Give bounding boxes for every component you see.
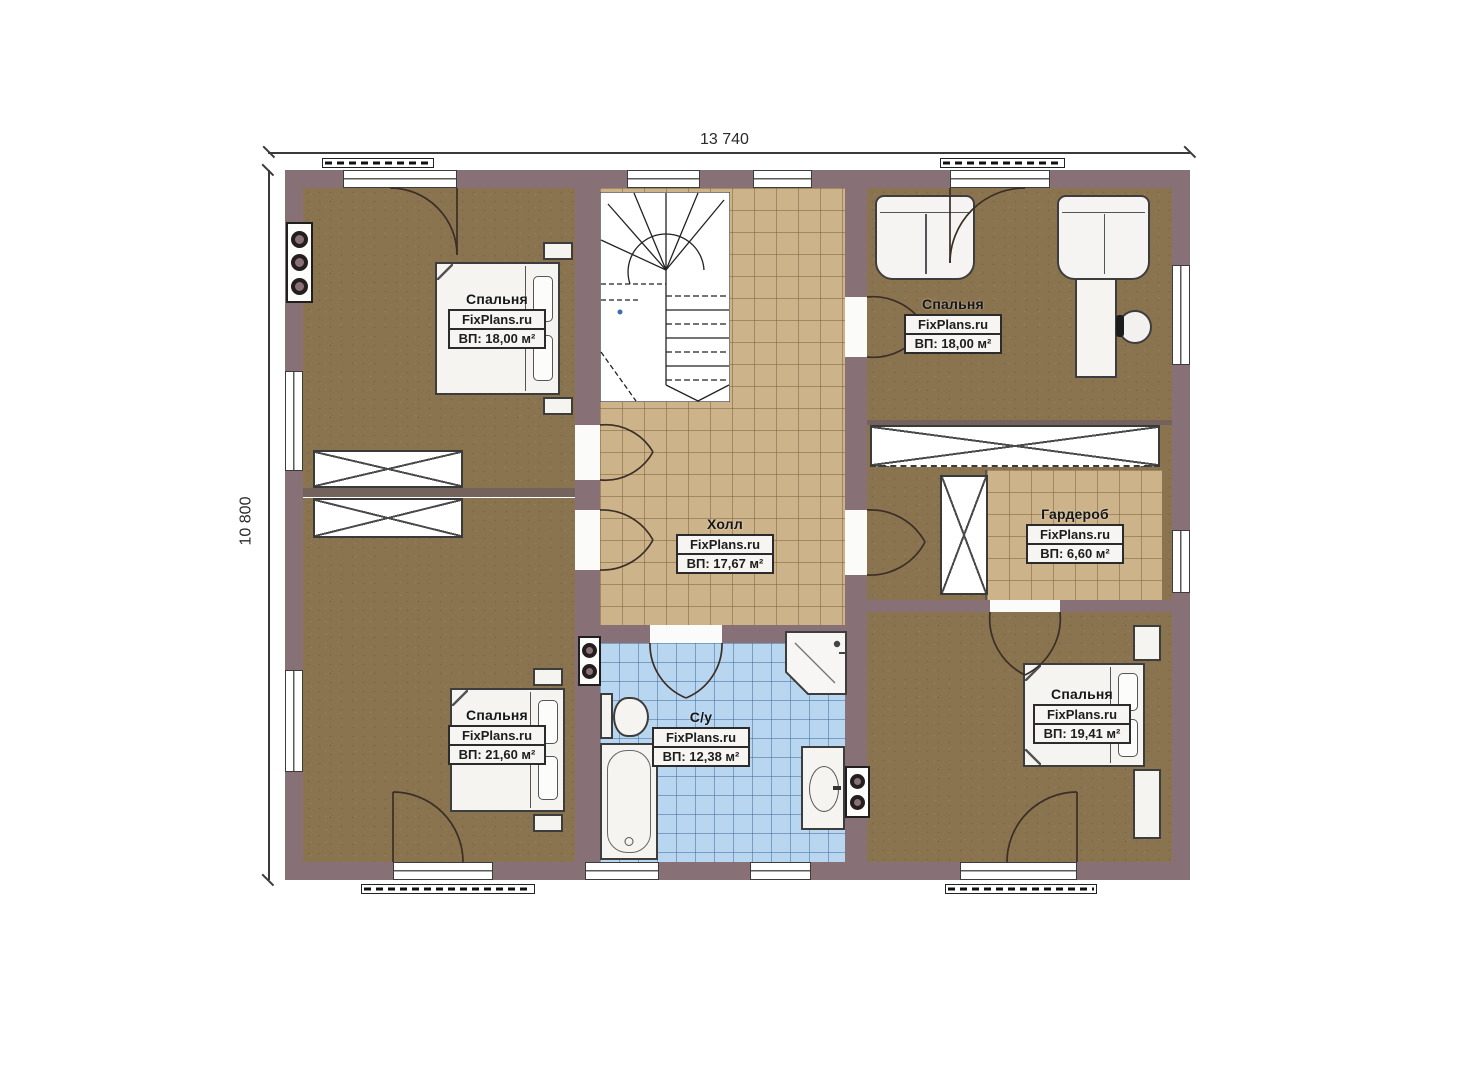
radiator xyxy=(322,158,434,168)
nightstand xyxy=(543,397,573,415)
watermark-text: FixPlans.ru xyxy=(450,727,544,744)
dimension-width-label: 13 740 xyxy=(700,131,749,149)
room-name: Спальня xyxy=(922,296,984,312)
radiator xyxy=(940,158,1065,168)
nightstand xyxy=(533,668,563,686)
nightstand xyxy=(533,814,563,832)
room-label-wardrobe: Гардероб FixPlans.ru ВП: 6,60 м² xyxy=(1026,506,1124,564)
room-info-card: FixPlans.ru ВП: 6,60 м² xyxy=(1026,524,1124,564)
radiator xyxy=(945,884,1097,894)
room-info-card: FixPlans.ru ВП: 18,00 м² xyxy=(904,314,1002,354)
door-opening xyxy=(575,425,600,480)
floor-plan: Спальня FixPlans.ru ВП: 18,00 м² Спальня… xyxy=(285,170,1190,880)
blanket-fold xyxy=(452,690,468,706)
vent-shaft-2 xyxy=(845,766,870,818)
balcony-door-bottom-left xyxy=(393,862,493,880)
door-opening xyxy=(845,510,867,575)
room-area-text: ВП: 12,38 м² xyxy=(654,746,748,765)
toilet-bowl xyxy=(613,697,649,737)
watermark-text: FixPlans.ru xyxy=(1035,706,1129,723)
wall-bedrooms-left-divider xyxy=(303,488,575,497)
room-info-card: FixPlans.ru ВП: 12,38 м² xyxy=(652,727,750,767)
room-name: Спальня xyxy=(466,291,528,307)
sofa xyxy=(1057,195,1150,280)
room-name: Спальня xyxy=(1051,686,1113,702)
window-stairs-1 xyxy=(627,170,700,188)
threshold-bathtub xyxy=(585,862,659,880)
wardrobe-closet-long xyxy=(870,425,1160,467)
closet xyxy=(313,450,463,488)
vent-circle xyxy=(850,774,865,789)
vent-circle xyxy=(291,254,308,271)
closet xyxy=(313,498,463,538)
window-right-2 xyxy=(1172,530,1190,593)
shower-cabin xyxy=(785,631,847,695)
door-opening xyxy=(845,297,867,357)
vent-shaft-2 xyxy=(578,636,601,686)
room-label-bedroom-top-right: Спальня FixPlans.ru ВП: 18,00 м² xyxy=(904,296,1002,354)
nightstand xyxy=(543,242,573,260)
wall-hall-left xyxy=(575,570,600,862)
watermark-text: FixPlans.ru xyxy=(1028,526,1122,543)
window-stairs-2 xyxy=(753,170,812,188)
room-label-bedroom-bottom-left: Спальня FixPlans.ru ВП: 21,60 м² xyxy=(448,707,546,765)
floor-plan-canvas: 13 740 10 800 xyxy=(0,0,1473,1080)
balcony-door-top-left xyxy=(343,170,457,188)
room-name: Гардероб xyxy=(1041,506,1109,522)
room-label-bedroom-top-left: Спальня FixPlans.ru ВП: 18,00 м² xyxy=(448,291,546,349)
vent-shaft-3 xyxy=(286,222,313,303)
watermark-text: FixPlans.ru xyxy=(678,536,772,553)
vent-circle xyxy=(291,231,308,248)
dimension-height-line xyxy=(268,170,270,880)
dresser xyxy=(1133,769,1161,839)
dimension-width-line xyxy=(268,152,1190,154)
wall-wardrobe-bottom xyxy=(1060,600,1172,612)
wardrobe-closet-side xyxy=(940,475,988,595)
vent-circle xyxy=(291,278,308,295)
wall-hall-left xyxy=(575,480,600,510)
wall-wardrobe-bottom xyxy=(845,600,990,612)
vent-circle xyxy=(850,795,865,810)
room-label-hall: Холл FixPlans.ru ВП: 17,67 м² xyxy=(676,516,774,574)
room-area-text: ВП: 19,41 м² xyxy=(1035,723,1129,742)
window-left-2 xyxy=(285,670,303,772)
wall-hall-left xyxy=(575,188,600,425)
blanket-fold xyxy=(1025,665,1041,681)
room-info-card: FixPlans.ru ВП: 17,67 м² xyxy=(676,534,774,574)
staircase xyxy=(600,192,730,402)
balcony-door-top-right xyxy=(950,170,1050,188)
room-area-text: ВП: 17,67 м² xyxy=(678,553,772,572)
wall-hall-right xyxy=(845,575,867,862)
vent-circle xyxy=(582,643,597,658)
window-left-1 xyxy=(285,371,303,471)
door-opening xyxy=(990,600,1060,612)
vent-circle xyxy=(582,664,597,679)
door-opening xyxy=(575,510,600,570)
sink-faucet xyxy=(833,786,841,790)
wall-hall-right xyxy=(845,357,867,510)
room-area-text: ВП: 18,00 м² xyxy=(450,328,544,347)
office-chair xyxy=(1118,310,1152,344)
room-info-card: FixPlans.ru ВП: 19,41 м² xyxy=(1033,704,1131,744)
room-name: Спальня xyxy=(466,707,528,723)
vanity xyxy=(801,746,845,830)
dimension-height-label: 10 800 xyxy=(237,497,255,546)
room-area-text: ВП: 18,00 м² xyxy=(906,333,1000,352)
balcony-door-bottom-right xyxy=(960,862,1077,880)
radiator xyxy=(361,884,535,894)
sofa xyxy=(875,195,975,280)
room-name: С/у xyxy=(690,709,712,725)
blanket-fold xyxy=(1025,749,1041,765)
toilet-tank xyxy=(600,693,613,739)
bathtub-drain xyxy=(625,837,634,846)
room-area-text: ВП: 21,60 м² xyxy=(450,744,544,763)
watermark-text: FixPlans.ru xyxy=(906,316,1000,333)
window-right-1 xyxy=(1172,265,1190,365)
wall-hall-right xyxy=(845,188,867,297)
watermark-text: FixPlans.ru xyxy=(450,311,544,328)
watermark-text: FixPlans.ru xyxy=(654,729,748,746)
bathtub xyxy=(600,743,658,860)
room-label-bathroom: С/у FixPlans.ru ВП: 12,38 м² xyxy=(652,709,750,767)
room-info-card: FixPlans.ru ВП: 21,60 м² xyxy=(448,725,546,765)
room-name: Холл xyxy=(707,516,743,532)
blanket-fold xyxy=(437,264,453,280)
window-bathroom xyxy=(750,862,811,880)
dresser xyxy=(1133,625,1161,661)
desk xyxy=(1075,278,1117,378)
door-opening xyxy=(650,625,722,643)
room-label-bedroom-bottom-right: Спальня FixPlans.ru ВП: 19,41 м² xyxy=(1033,686,1131,744)
room-info-card: FixPlans.ru ВП: 18,00 м² xyxy=(448,309,546,349)
room-area-text: ВП: 6,60 м² xyxy=(1028,543,1122,562)
